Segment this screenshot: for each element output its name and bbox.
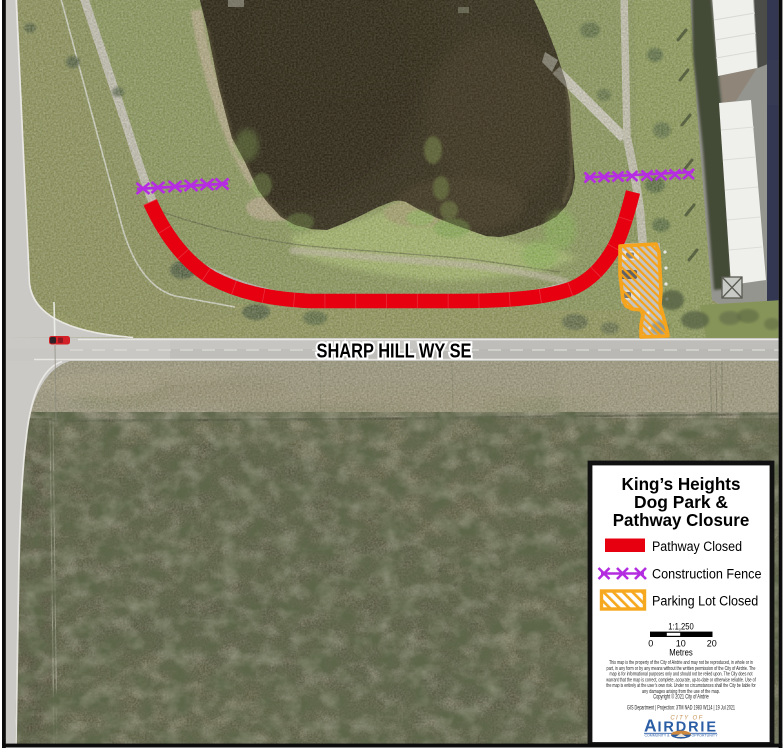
- svg-text:A: A: [644, 716, 657, 736]
- svg-text:King’s Heights: King’s Heights: [622, 474, 741, 494]
- svg-text:Pathway Closure: Pathway Closure: [613, 510, 750, 530]
- svg-text:SHARP HILL WY SE: SHARP HILL WY SE: [317, 340, 472, 363]
- svg-text:GIS Department | Projection: 3: GIS Department | Projection: 3TM NAD 198…: [627, 705, 735, 712]
- svg-text:Pathway Closed: Pathway Closed: [652, 539, 742, 555]
- svg-text:0: 0: [648, 639, 653, 649]
- svg-text:Dog Park &: Dog Park &: [634, 492, 728, 512]
- svg-text:Copyright © 2021 City of Airdr: Copyright © 2021 City of Airdrie: [653, 694, 709, 701]
- svg-text:Construction Fence: Construction Fence: [652, 566, 762, 582]
- svg-text:20: 20: [707, 639, 717, 649]
- svg-text:OPPORTUNITY: OPPORTUNITY: [692, 734, 719, 738]
- svg-text:COMMUNITY &: COMMUNITY &: [645, 734, 671, 738]
- svg-text:1:1,250: 1:1,250: [668, 622, 694, 633]
- svg-text:Parking Lot Closed: Parking Lot Closed: [652, 593, 758, 609]
- svg-text:Metres: Metres: [669, 648, 693, 658]
